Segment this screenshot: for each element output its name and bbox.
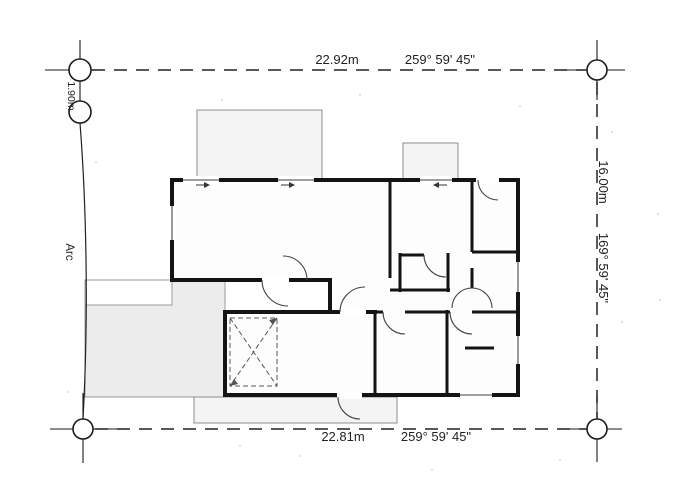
- left-boundary-offset: 1.90m: [65, 81, 77, 110]
- porch-top-right: [403, 143, 458, 180]
- left-boundary-arc-label: Arc: [63, 243, 75, 261]
- concrete-pad: [85, 280, 172, 305]
- site-plan-drawing: 22.92m 259° 59' 45" 22.81m 259° 59' 45" …: [0, 0, 700, 500]
- survey-marker-bottom-right: [560, 395, 622, 462]
- top-boundary-bearing: 259° 59' 45": [405, 52, 476, 67]
- survey-marker-bottom-left: [50, 393, 125, 463]
- top-boundary-length: 22.92m: [315, 52, 358, 67]
- floor-plan-canvas: 22.92m 259° 59' 45" 22.81m 259° 59' 45" …: [0, 0, 700, 500]
- porch-bottom: [194, 397, 397, 423]
- right-boundary-bearing: 169° 59' 45": [596, 233, 611, 304]
- bottom-boundary-bearing: 259° 59' 45": [401, 429, 472, 444]
- porch-top-left: [197, 110, 322, 180]
- boundary-left-arc-line: [80, 123, 86, 419]
- survey-marker-top-right: [560, 40, 625, 100]
- bottom-boundary-length: 22.81m: [321, 429, 364, 444]
- right-boundary-length: 16.00m: [596, 160, 611, 203]
